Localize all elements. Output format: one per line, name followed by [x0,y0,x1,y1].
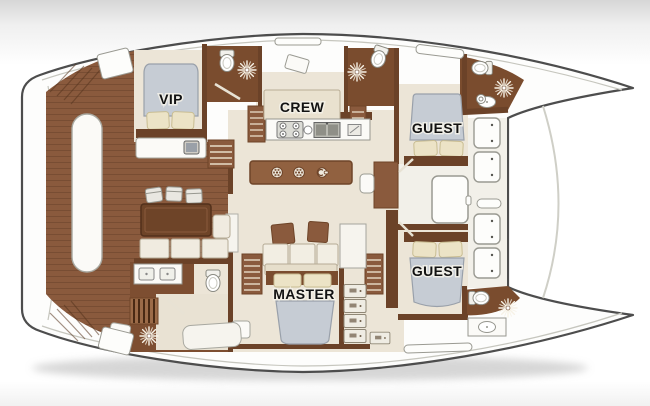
transom-bench [72,114,102,272]
shower-light-icon [140,327,158,345]
nav-chair [360,174,374,193]
tv-icon [184,141,199,154]
guest-aft-pillow [413,241,437,257]
deck-plan-svg: VIP CREW GUEST MASTER GUEST [0,0,650,406]
shower-light-icon [348,63,366,81]
deck-hatch-icon [474,214,500,244]
cockpit-chair [145,187,163,203]
deck-hatch-bar [275,38,321,45]
deck-hatch-icon [474,118,500,148]
shower-light-icon [499,299,517,317]
cockpit-table [141,204,211,236]
stairs-salon-right [365,254,383,294]
deck-hatch-icon [474,248,500,278]
nav-desk [374,162,398,208]
toilet-icon [206,270,220,292]
toilet-icon [472,61,492,74]
deck-hatch-icon [474,152,500,182]
cockpit-chair [186,189,203,204]
room-label-master: MASTER [273,286,335,302]
hull-ladder [130,298,158,324]
salon-stool [271,223,295,245]
foredeck-hatch-handle [466,196,471,205]
deck-cleat-icon [477,199,501,208]
stairs-galley-left [248,106,265,142]
trampoline-beam-line [543,106,559,298]
guest-forward-headboard [404,156,468,166]
guest-aft-headboard [404,232,468,242]
vip-pillow [172,111,195,129]
guest-forward-pillow [414,140,438,156]
guest-aft-pillow [439,241,463,257]
toilet-icon [469,291,489,304]
salon-stool [307,221,328,242]
vip-bed [144,64,198,116]
cockpit-chair [166,187,183,202]
plate-icon [294,167,305,178]
salon-cabinet [340,224,366,268]
room-label-guest-aft: GUEST [412,263,462,279]
shower-light-icon [495,79,513,97]
room-label-crew: CREW [280,99,325,115]
room-label-guest-forward: GUEST [412,120,462,136]
room-label-vip: VIP [159,91,183,107]
deck-plan-image: VIP CREW GUEST MASTER GUEST [0,0,650,406]
salon-sofa [263,244,338,275]
double-sink-icon [314,122,340,137]
foredeck-hatch-large [432,176,468,223]
stairs-vip [208,140,234,168]
plate-icon [272,167,283,178]
master-bed [276,301,334,344]
stairs-salon-left [242,254,262,294]
vip-headboard [136,129,206,138]
winch-icon [477,95,486,104]
guest-forward-pillow [440,140,464,156]
sink-icon [479,322,496,333]
galley-island [250,161,352,184]
toilet-icon [220,50,234,72]
vip-pillow [147,111,170,129]
deck-hatch-bar [404,343,472,353]
round-sink-icon [304,126,312,134]
shower-light-icon [238,61,256,79]
crew-berth [182,322,242,350]
appliance-icon [348,125,361,136]
stove-icon [277,122,303,139]
